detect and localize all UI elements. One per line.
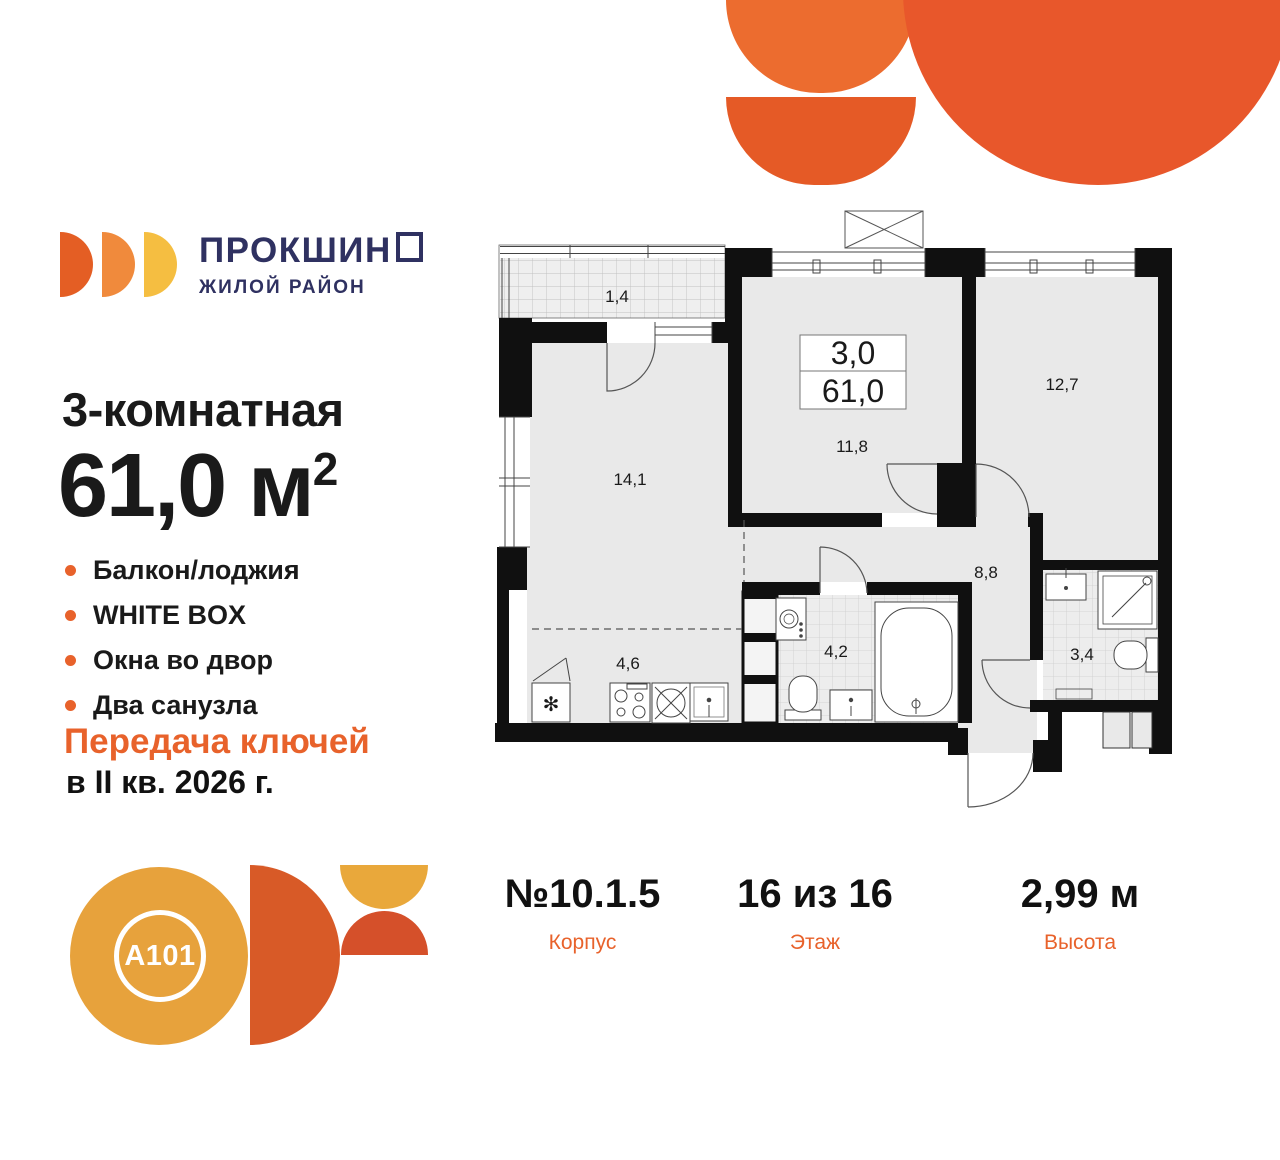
deco-semicircle-small-top (726, 0, 916, 93)
info-total-area: 61,0 (822, 373, 884, 409)
label-bedroom2: 12,7 (1045, 375, 1078, 394)
plan-info-box: 3,0 61,0 (800, 335, 906, 409)
handover-line1: Передача ключей (64, 722, 370, 762)
deco-circle-large (903, 0, 1280, 185)
stat-floor-value: 16 из 16 (725, 872, 905, 917)
half-disc-icon (102, 232, 135, 297)
stat-height-label: Высота (995, 931, 1165, 955)
toilet (1114, 641, 1147, 669)
shower (1098, 571, 1157, 629)
toilet (789, 676, 817, 712)
area-superscript: 2 (313, 443, 337, 495)
a101-half-disc (250, 865, 340, 1045)
brand-subtitle: ЖИЛОЙ РАЙОН (199, 277, 423, 299)
a101-logo-text: A101 (124, 940, 195, 973)
a101-logo-ring: A101 (114, 910, 206, 1002)
utility-shafts (1103, 712, 1152, 748)
label-bathroom2: 3,4 (1070, 645, 1094, 664)
toilet-tank (1146, 638, 1158, 672)
stat-building-label: Корпус (490, 931, 675, 955)
feature-item: WHITE BOX (65, 593, 300, 638)
handover-line2: в II кв. 2026 г. (66, 764, 274, 801)
feature-item: Балкон/лоджия (65, 548, 300, 593)
square-o-glyph (396, 232, 424, 262)
stat-building-value: №10.1.5 (490, 872, 675, 917)
floor-plan: ✻ (495, 205, 1185, 855)
half-disc-icon (60, 232, 93, 297)
brand-logo-icon (60, 232, 177, 299)
stat-floor-label: Этаж (725, 931, 905, 955)
bullet-icon (65, 610, 76, 621)
label-bathroom1: 4,2 (824, 642, 848, 661)
label-living: 14,1 (613, 470, 646, 489)
stat-floor: 16 из 16 Этаж (725, 872, 905, 955)
bullet-icon (65, 655, 76, 666)
stat-building: №10.1.5 Корпус (490, 872, 675, 955)
brand-title: ПРОКШИН (199, 232, 423, 269)
snowflake-icon: ✻ (543, 694, 560, 716)
label-hallway: 8,8 (974, 563, 998, 582)
plumbing-shaft (743, 592, 777, 723)
bullet-icon (65, 565, 76, 576)
stat-height: 2,99 м Высота (995, 872, 1165, 955)
brand-logo: ПРОКШИН ЖИЛОЙ РАЙОН (60, 232, 423, 299)
a101-hourglass-top (340, 865, 428, 909)
feature-item: Окна во двор (65, 638, 300, 683)
stat-height-value: 2,99 м (995, 872, 1165, 917)
feature-list: Балкон/лоджия WHITE BOX Окна во двор Два… (65, 548, 300, 728)
a101-hourglass-bottom (341, 911, 428, 955)
label-kitchen: 4,6 (616, 654, 640, 673)
crossed-box (845, 211, 923, 248)
info-rooms-count: 3,0 (831, 335, 875, 371)
rooms-title: 3-комнатная (62, 382, 344, 437)
label-bedroom1: 11,8 (836, 437, 868, 456)
entrance-door (968, 753, 1033, 807)
label-balcony: 1,4 (605, 287, 629, 306)
area-value: 61,0 м2 (58, 436, 336, 536)
bullet-icon (65, 700, 76, 711)
deco-semicircle-small-bottom (726, 97, 916, 185)
half-disc-icon (144, 232, 177, 297)
